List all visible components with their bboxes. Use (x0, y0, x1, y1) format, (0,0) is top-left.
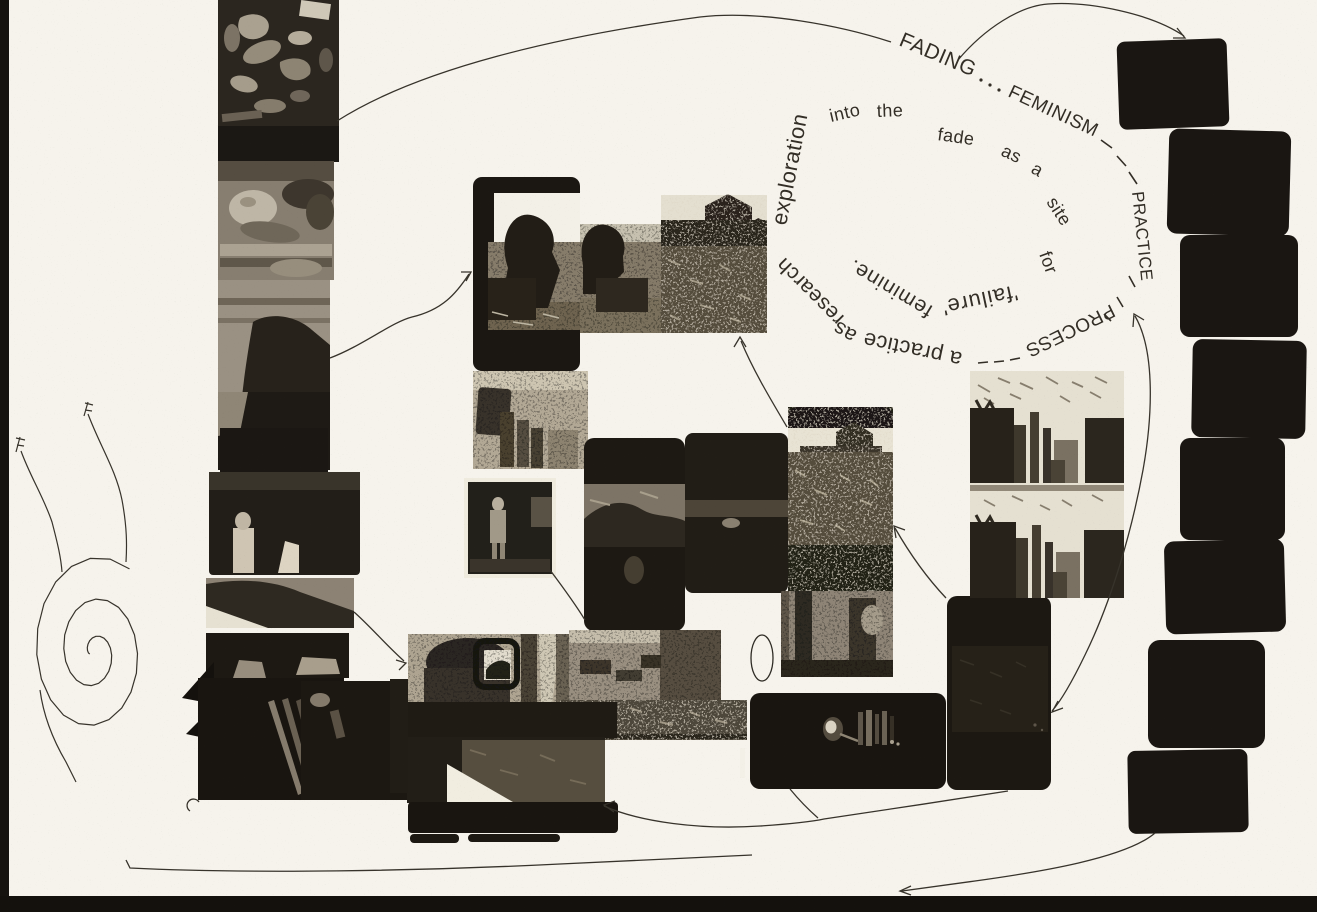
svg-text:the: the (876, 100, 903, 121)
